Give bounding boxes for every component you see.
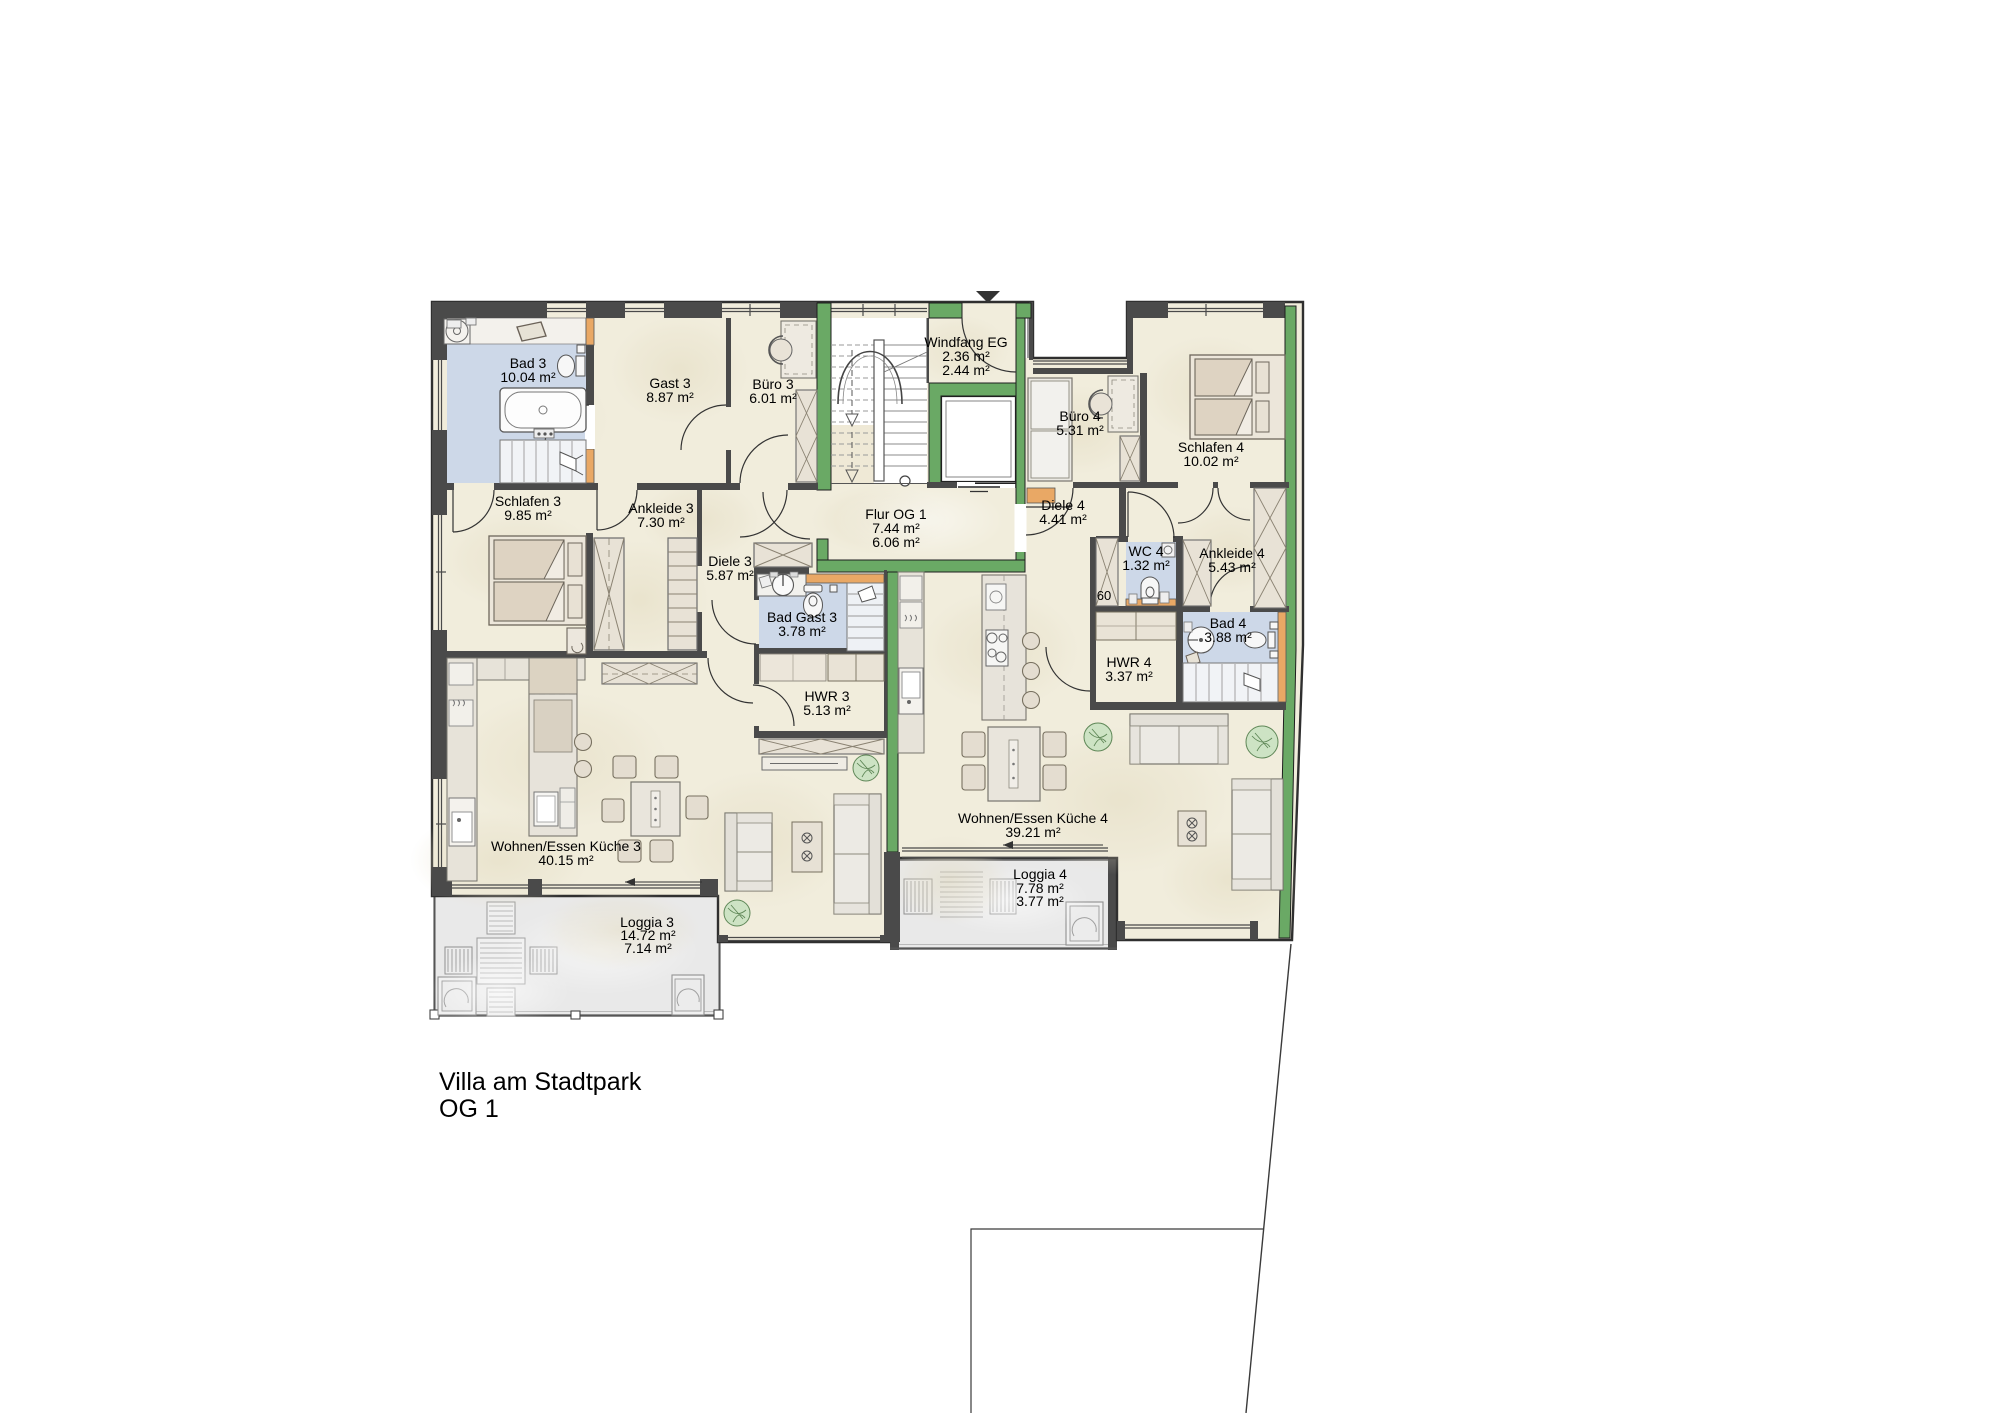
svg-text:3.37 m²: 3.37 m² (1105, 668, 1153, 684)
svg-text:5.43 m²: 5.43 m² (1208, 559, 1256, 575)
svg-text:39.21 m²: 39.21 m² (1005, 824, 1061, 840)
svg-text:4.41 m²: 4.41 m² (1039, 511, 1087, 527)
svg-text:5.31 m²: 5.31 m² (1056, 422, 1104, 438)
svg-text:8.87 m²: 8.87 m² (646, 389, 694, 405)
svg-text:3.78 m²: 3.78 m² (778, 623, 826, 639)
svg-text:40.15 m²: 40.15 m² (538, 852, 594, 868)
svg-text:6.01 m²: 6.01 m² (749, 390, 797, 406)
svg-text:7.30 m²: 7.30 m² (637, 514, 685, 530)
svg-text:3.77 m²: 3.77 m² (1016, 893, 1064, 909)
svg-text:10.02 m²: 10.02 m² (1183, 453, 1239, 469)
svg-text:5.87 m²: 5.87 m² (706, 567, 754, 583)
svg-text:Villa am Stadtpark: Villa am Stadtpark (439, 1068, 642, 1096)
svg-text:9.85 m²: 9.85 m² (504, 507, 552, 523)
svg-text:1.32 m²: 1.32 m² (1122, 557, 1170, 573)
svg-text:OG 1: OG 1 (439, 1095, 499, 1123)
svg-text:3.88 m²: 3.88 m² (1204, 629, 1252, 645)
svg-text:6.06 m²: 6.06 m² (872, 534, 920, 550)
svg-text:7.14 m²: 7.14 m² (624, 940, 672, 956)
svg-text:10.04 m²: 10.04 m² (500, 369, 556, 385)
svg-text:5.13 m²: 5.13 m² (803, 702, 851, 718)
svg-text:2.44 m²: 2.44 m² (942, 362, 990, 378)
svg-text:60: 60 (1097, 588, 1111, 603)
